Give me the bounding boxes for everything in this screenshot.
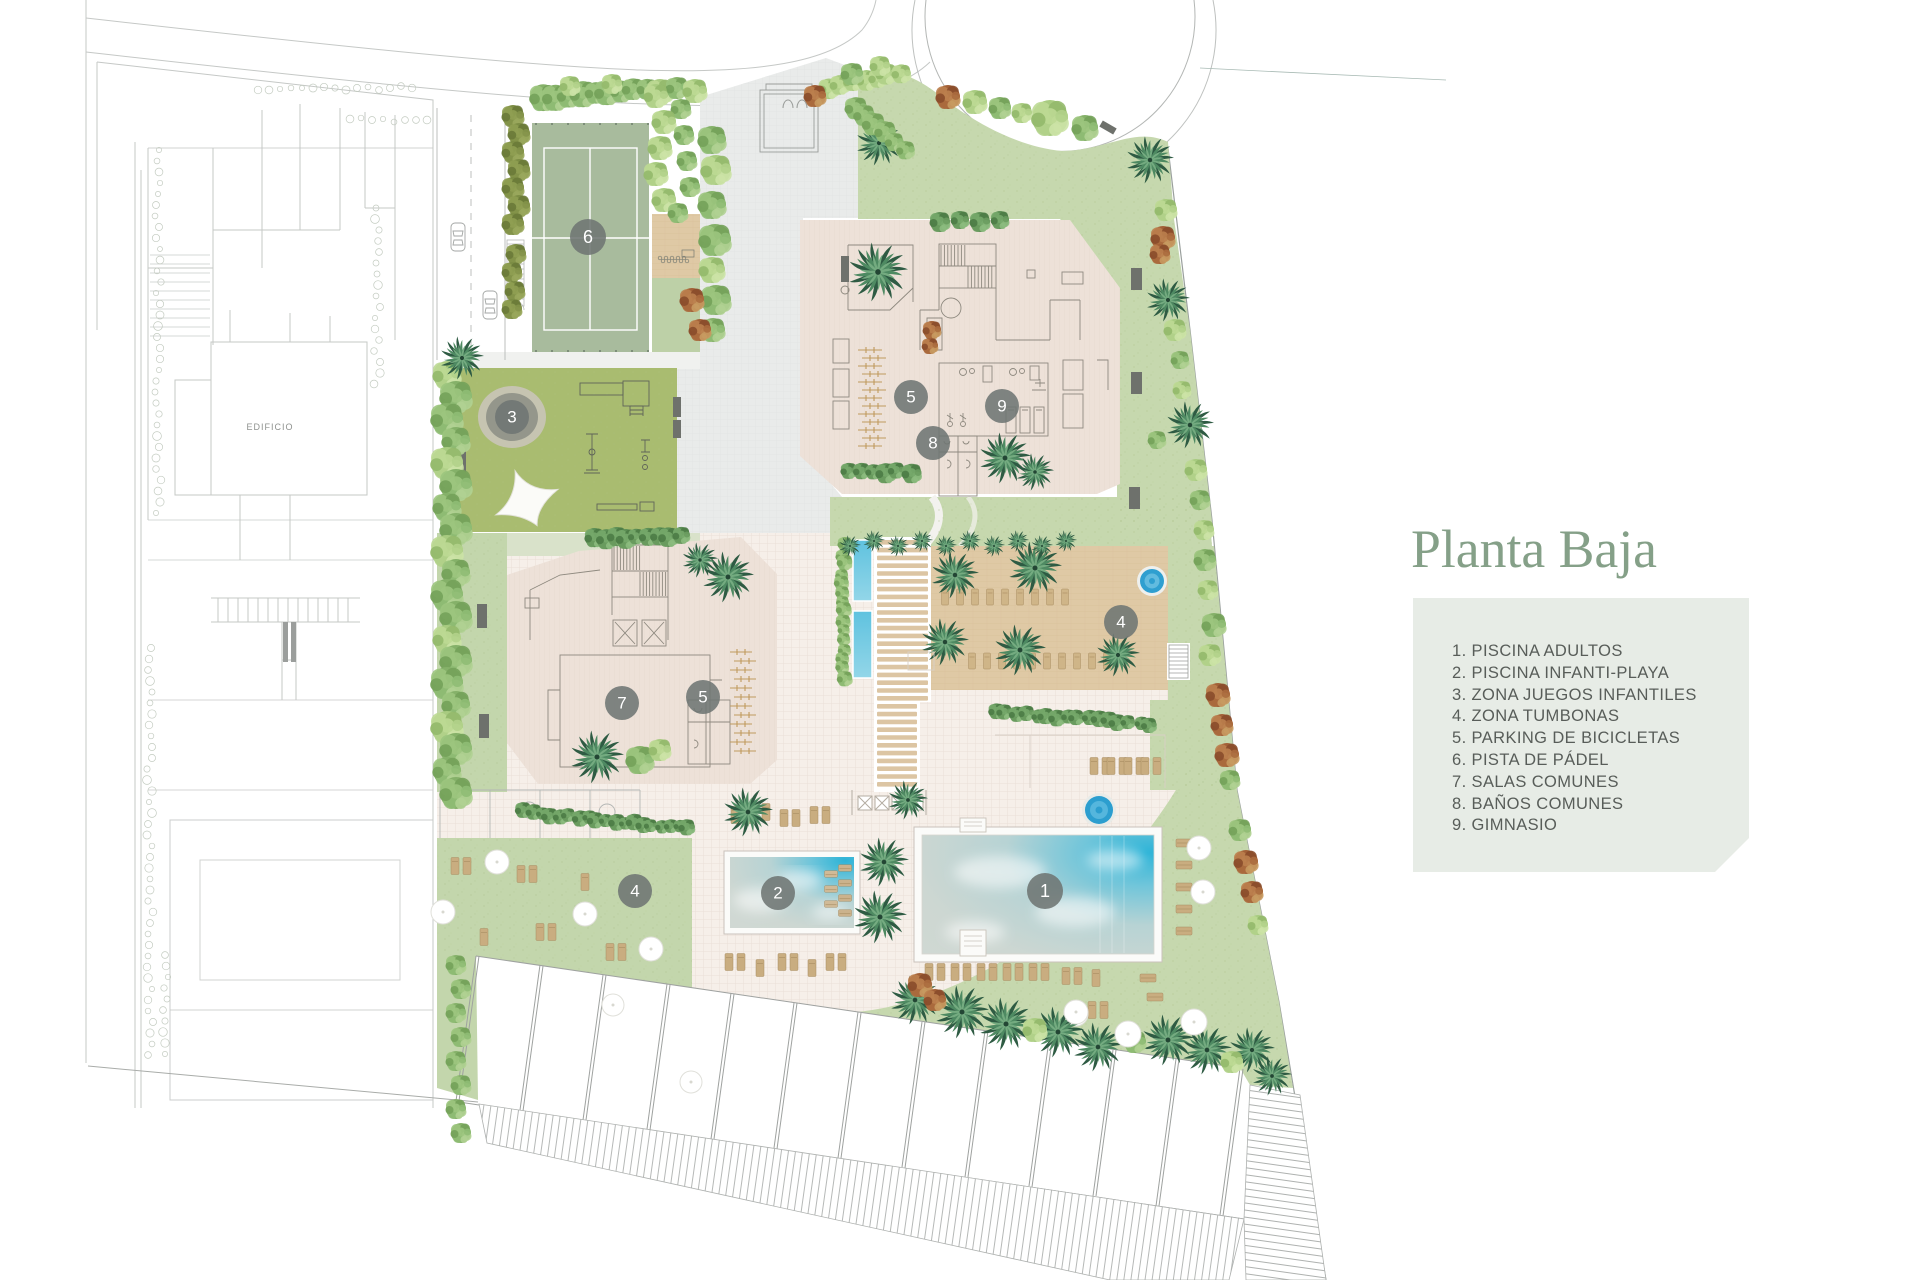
svg-text:4: 4 xyxy=(630,882,639,901)
svg-text:7: 7 xyxy=(617,694,626,713)
svg-text:5: 5 xyxy=(906,388,915,407)
svg-text:6. PISTA DE PÁDEL: 6. PISTA DE PÁDEL xyxy=(1452,750,1609,769)
svg-text:8: 8 xyxy=(928,434,937,453)
svg-text:EDIFICIO: EDIFICIO xyxy=(246,422,293,432)
svg-text:2: 2 xyxy=(773,884,782,903)
svg-text:3. ZONA JUEGOS INFANTILES: 3. ZONA JUEGOS INFANTILES xyxy=(1452,686,1697,704)
svg-text:3: 3 xyxy=(507,408,516,427)
svg-text:4. ZONA TUMBONAS: 4. ZONA TUMBONAS xyxy=(1452,707,1619,725)
svg-text:4: 4 xyxy=(1116,613,1125,632)
svg-text:9: 9 xyxy=(997,397,1006,416)
svg-text:7. SALAS COMUNES: 7. SALAS COMUNES xyxy=(1452,773,1619,791)
svg-text:9. GIMNASIO: 9. GIMNASIO xyxy=(1452,816,1557,834)
svg-text:1: 1 xyxy=(1040,881,1050,901)
svg-text:5. PARKING DE BICICLETAS: 5. PARKING DE BICICLETAS xyxy=(1452,729,1680,747)
svg-text:8. BAÑOS COMUNES: 8. BAÑOS COMUNES xyxy=(1452,793,1623,813)
svg-text:Planta Baja: Planta Baja xyxy=(1411,519,1657,579)
svg-text:6: 6 xyxy=(583,227,593,247)
svg-text:5: 5 xyxy=(698,688,707,707)
svg-text:2. PISCINA INFANTI-PLAYA: 2. PISCINA INFANTI-PLAYA xyxy=(1452,664,1669,682)
svg-text:1. PISCINA ADULTOS: 1. PISCINA ADULTOS xyxy=(1452,642,1623,660)
